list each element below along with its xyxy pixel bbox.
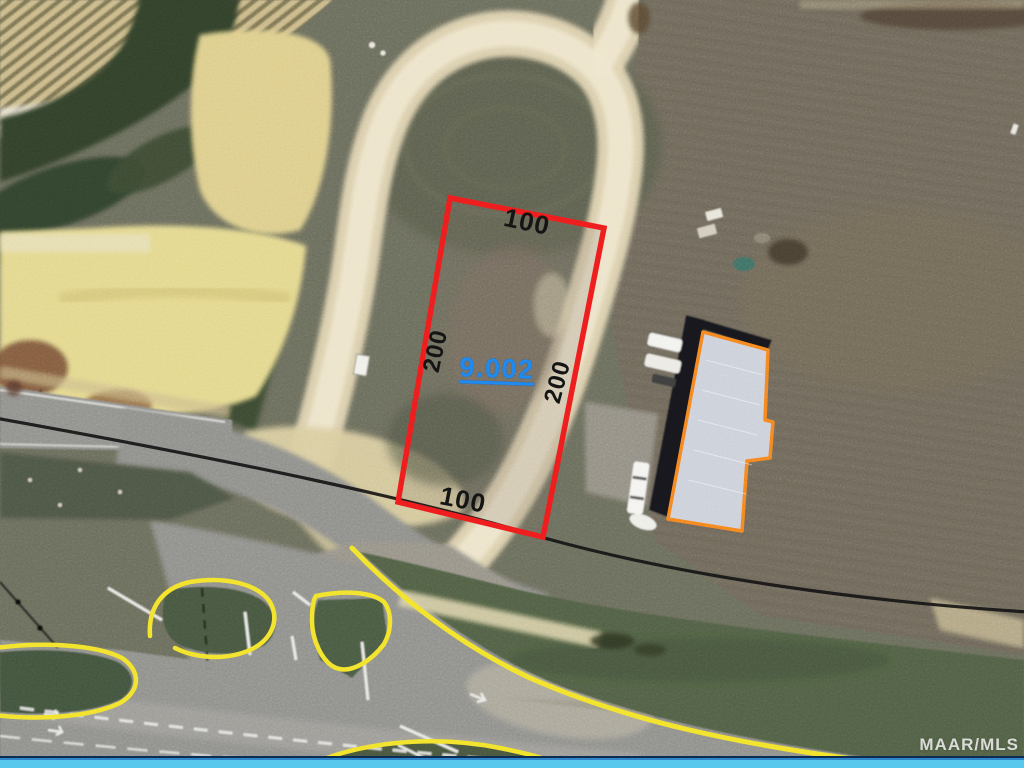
mls-watermark: MAAR/MLS [919, 735, 1019, 755]
window-edge-bar [0, 756, 1024, 768]
parcel-id-label: 9.002 [459, 352, 535, 386]
aerial-lot-photo: 100 200 200 100 9.002 MAAR/MLS [0, 0, 1024, 768]
